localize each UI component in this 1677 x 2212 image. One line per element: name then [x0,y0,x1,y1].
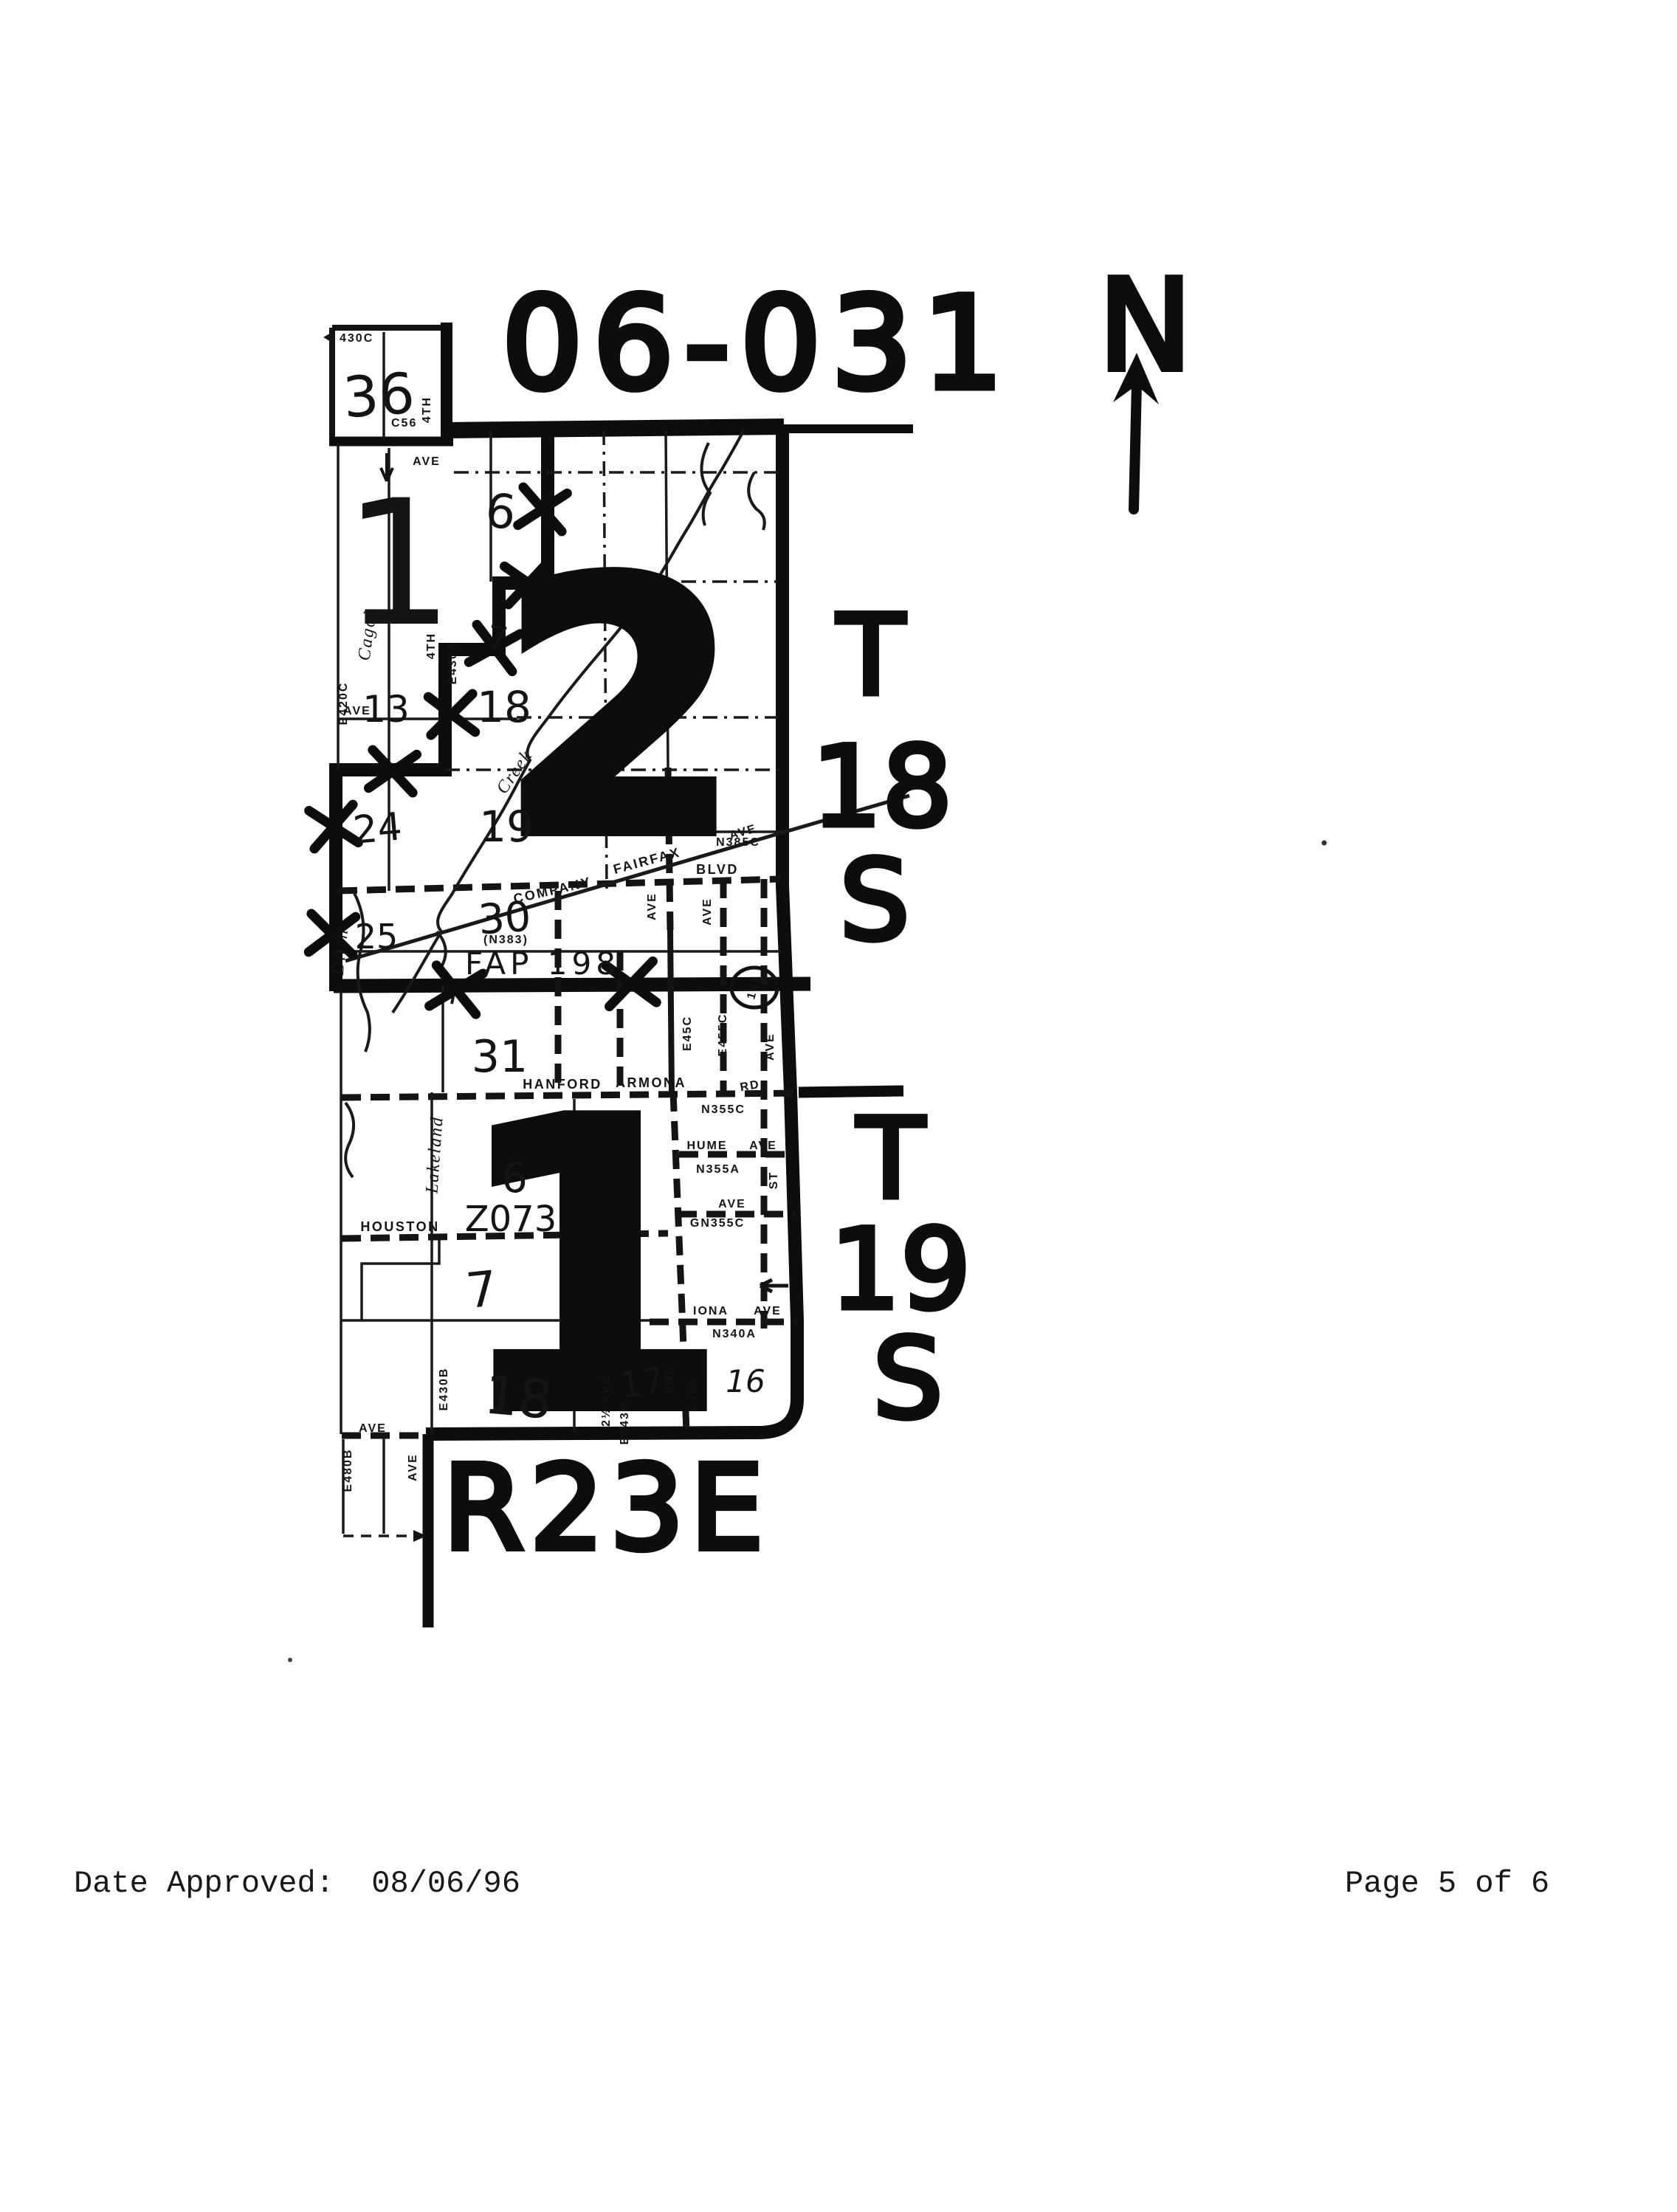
ditch-label: Ditch [328,927,353,976]
arrow-left-icon [323,332,332,342]
two-half-ave-label: 2½ AVE [600,1375,613,1427]
iona-ave-label: AVE [754,1305,782,1317]
date-approved-label: Date Approved: [74,1866,334,1901]
hume-label: HUME [686,1140,727,1152]
township19-t: T [856,1095,926,1224]
date-approved-value: 08/06/96 [371,1866,520,1901]
creek-squiggle-2 [748,472,765,530]
ave-vert-2: AVE [701,897,714,926]
section-24: 24 [351,804,404,853]
st-label: ST [768,1171,780,1189]
code-n383: (N383) [483,934,528,946]
arrow-left-icon [760,1280,788,1292]
big-labels: 06-031 N R23E T 18 S T 19 S 2 1 [443,253,1192,1577]
code-n385c: N385C [716,836,760,849]
ave-vert-bottom: AVE [407,1453,419,1481]
ave-vert-1: AVE [646,892,658,920]
section-18-upper: 18 [477,682,531,732]
section7-jog [362,1238,439,1320]
blvd-label: BLVD [696,862,739,877]
code-c56: C56 [391,417,417,430]
township-line-tick [799,1091,903,1092]
code-l450: L450 [687,1379,700,1411]
lakeland-label: Lakeland [422,1115,447,1195]
section-6-lower: 6 [501,1154,528,1202]
code-e430a: E430A [447,641,459,685]
section-25: 25 [355,917,399,957]
township18-num: 18 [812,723,953,852]
code-e45c: E45C [681,1016,694,1051]
fap-198-label: FAP 198 [465,945,620,982]
hume-ave-label: AVE [749,1140,777,1152]
code-e480b: E480B [342,1449,354,1492]
section-31: 31 [472,1031,528,1083]
zone-code: Z073 [465,1199,557,1240]
houston-label: HOUSTON [360,1219,439,1234]
code-e455c: E455C [717,1013,729,1057]
north-letter: N [1098,253,1192,399]
road-4th-mid: 4TH [425,633,438,659]
ave-bottom-label: AVE [359,1422,387,1435]
code-n355c: N355C [701,1103,745,1116]
ave-1630: AVE [718,1198,746,1210]
section-17: 17 [617,1360,667,1407]
section-19: 19 [479,802,534,852]
road-ave-box: AVE [413,455,441,468]
township18-t: T [836,592,906,720]
section-7-lower: 7 [464,1260,500,1320]
section-6-upper: 6 [483,483,518,541]
code-n355a: N355A [696,1163,740,1176]
speck-dot [288,1658,292,1662]
code-n340a: N340A [712,1328,757,1340]
code-e443b: E443B [619,1402,631,1445]
page-number: Page 5 of 6 [1345,1866,1549,1901]
lakeland-creek [345,1103,354,1177]
hanford-label: HANFORD [523,1077,602,1092]
north-boundary-thick [447,427,784,430]
iona-label: IONA [693,1305,729,1317]
district-2-number: 2 [499,509,740,912]
scanned-map-page: 198 06-031 N R23E T 18 S T 19 S 2 1 36 1… [0,0,1677,2212]
spacer [334,1866,371,1901]
code-430c: 430C [340,332,373,345]
township19-s: S [872,1315,943,1444]
map-code-title: 06-031 [502,269,1013,418]
second-ave-label: 2ND [663,1365,675,1393]
code-gn355c: GN355C [690,1217,745,1230]
road-4th-box: 4TH [421,396,433,423]
speck-dot [1322,841,1327,846]
code-e420c: E420C [337,682,350,726]
township18-s: S [839,837,909,965]
code-e430b: E430B [438,1368,450,1411]
armona-label: ARMONA [616,1075,686,1090]
section-16: 16 [726,1363,765,1399]
date-approved-line: Date Approved: 08/06/96 [74,1866,520,1901]
section-18-lower: 18 [482,1363,555,1431]
ave-vert-3: AVE [764,1033,776,1061]
fap198-boundary [334,984,810,986]
